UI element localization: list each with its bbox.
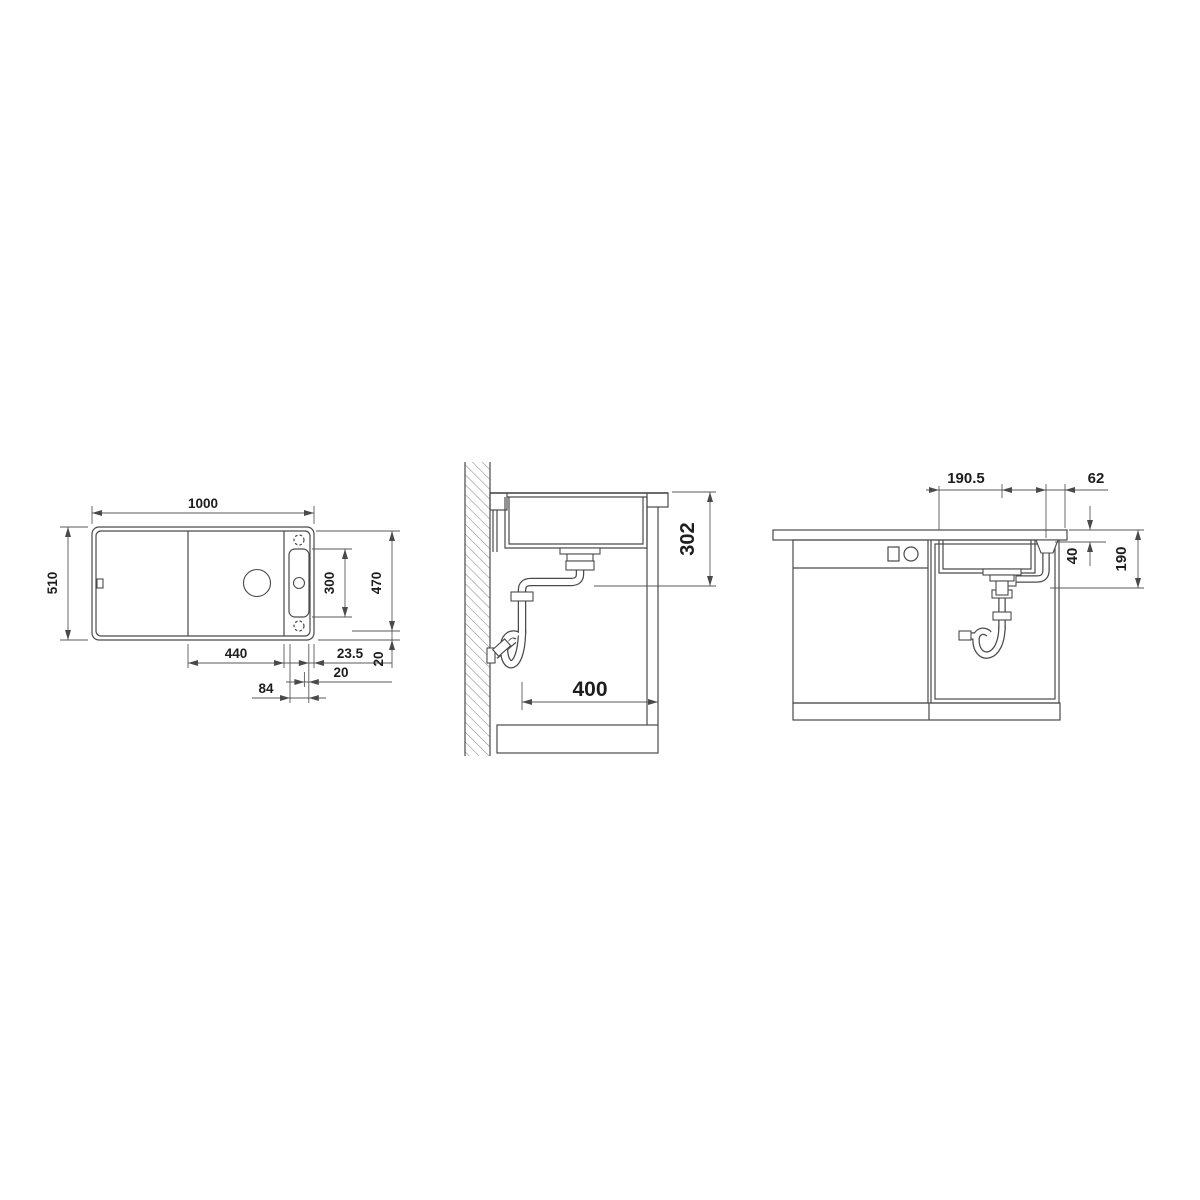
pipe-nut-vertical	[511, 592, 533, 601]
dim-overall-depth: 510	[45, 572, 60, 595]
side-view-piping	[487, 548, 600, 664]
strainer-nut	[566, 561, 594, 570]
dim-ledge-offset: 20	[333, 665, 348, 680]
left-cabinet	[793, 540, 928, 703]
dim-depth-margin: 20	[371, 651, 386, 666]
base-plinth	[793, 703, 1060, 720]
front-view-piping	[959, 540, 1058, 655]
top-view-extension-lines	[60, 506, 400, 703]
dim-tap-ledge-length: 300	[322, 572, 337, 595]
front-view: 190.5 62 40 190	[773, 470, 1144, 720]
appliance-knob	[904, 547, 918, 561]
pipe-nut-stub	[959, 631, 971, 640]
wall-hatch	[465, 462, 490, 756]
right-cabinet-inner	[935, 544, 1055, 699]
dim-outlet-to-edge: 62	[1088, 470, 1105, 487]
optional-tap-hole-bottom	[294, 621, 304, 631]
bowl-inner-wall	[509, 497, 643, 544]
dim-outlet-height: 302	[677, 522, 699, 555]
bowl-outer-wall	[505, 497, 647, 548]
dim-basin-zone-depth: 470	[369, 572, 384, 595]
strainer-flange-front	[983, 569, 1021, 575]
dim-overall-width: 1000	[188, 496, 218, 511]
counter-front-section	[647, 493, 668, 507]
strainer-body-front	[990, 575, 1014, 581]
dim-bowl-edge-to-drain: 190.5	[947, 470, 985, 487]
dim-ledge-width: 84	[258, 681, 274, 696]
strainer-body	[567, 554, 593, 561]
dim-rim-to-edge: 23.5	[337, 646, 364, 661]
appliance-switch	[888, 547, 899, 561]
dim-under-counter: 40	[1064, 548, 1081, 565]
countertop	[773, 530, 1067, 540]
dim-bowl-width: 440	[225, 646, 248, 661]
bowl-outer	[939, 540, 1035, 573]
sink-installation-diagram: 1000 510 300 470 20 440 23.5 20 84	[0, 0, 1200, 1200]
drain-hole	[244, 570, 271, 597]
cabinet-plinth	[497, 725, 658, 753]
side-section-view: 302 400	[465, 462, 716, 756]
sink-outer-rim	[92, 527, 314, 640]
technical-drawing-page: 1000 510 300 470 20 440 23.5 20 84	[0, 0, 1200, 1200]
optional-tap-hole-top	[294, 535, 304, 545]
pipe-nut-lower	[993, 612, 1011, 620]
overflow-slot	[97, 579, 103, 588]
strainer-flange	[560, 548, 600, 554]
dim-outlet-clearance: 400	[572, 678, 607, 701]
dim-outlet-drop: 190	[1113, 546, 1130, 571]
sink-inner-rim	[96, 531, 310, 636]
strainer-tail-front	[996, 581, 1008, 595]
tap-hole	[294, 578, 305, 589]
top-view: 1000 510 300 470 20 440 23.5 20 84	[45, 496, 400, 703]
right-cabinet-outer	[931, 540, 1059, 703]
